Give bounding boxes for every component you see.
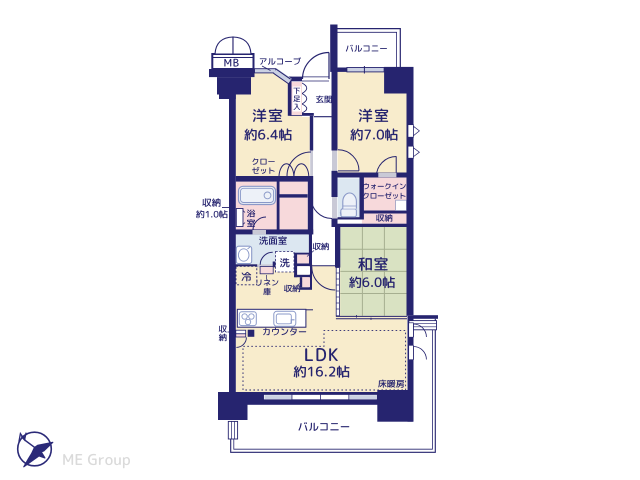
svg-text:バルコニー: バルコニー	[345, 43, 388, 55]
svg-text:洋室: 洋室	[252, 105, 284, 126]
svg-text:洗面室: 洗面室	[259, 235, 288, 248]
svg-text:ゼット: ゼット	[252, 165, 276, 177]
svg-text:収納: 収納	[218, 323, 226, 344]
svg-text:約7.0帖: 約7.0帖	[350, 126, 399, 145]
svg-text:収納: 収納	[312, 241, 329, 253]
svg-text:ME Group: ME Group	[62, 449, 131, 470]
svg-text:ウォークイン: ウォークイン	[362, 182, 406, 192]
svg-text:冷: 冷	[241, 271, 252, 285]
svg-text:下足入: 下足入	[293, 87, 301, 113]
svg-text:約6.4帖: 約6.4帖	[244, 126, 293, 145]
svg-text:カウンター: カウンター	[262, 325, 307, 338]
svg-text:浴室: 浴室	[246, 207, 255, 230]
svg-text:クローゼット: クローゼット	[362, 192, 406, 202]
svg-text:洗: 洗	[279, 257, 290, 271]
svg-text:洋室: 洋室	[358, 105, 390, 126]
svg-text:収納: 収納	[376, 212, 394, 224]
svg-text:収納: 収納	[284, 283, 301, 295]
svg-text:MB: MB	[223, 57, 239, 71]
svg-text:約1.0帖: 約1.0帖	[196, 208, 228, 221]
svg-text:和室: 和室	[357, 254, 389, 275]
svg-text:バルコニー: バルコニー	[298, 421, 351, 435]
svg-text:約16.2帖: 約16.2帖	[293, 363, 350, 382]
svg-text:約6.0帖: 約6.0帖	[349, 274, 395, 292]
svg-text:床暖房: 床暖房	[378, 377, 405, 390]
svg-text:玄関: 玄関	[315, 94, 333, 106]
svg-text:庫: 庫	[263, 286, 271, 298]
svg-text:アルコーブ: アルコーブ	[259, 56, 302, 68]
